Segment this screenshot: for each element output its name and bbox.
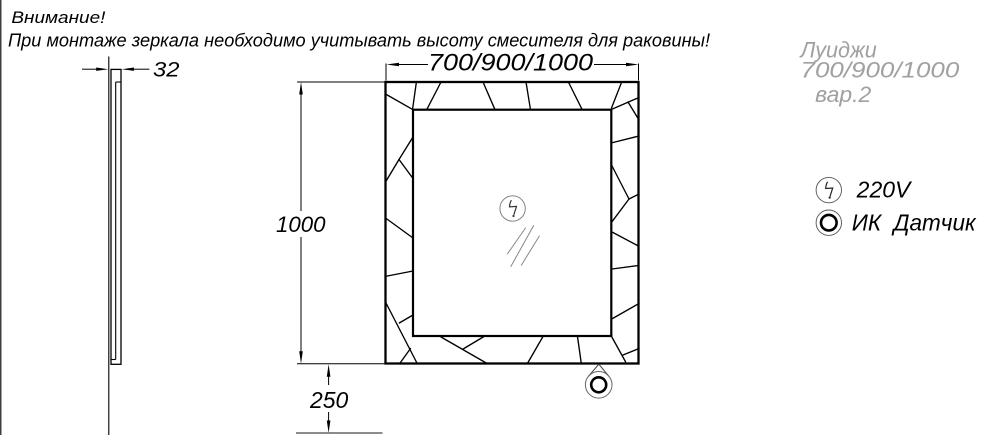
svg-text:Внимание!: Внимание! <box>11 8 105 27</box>
svg-text:700/900/1000: 700/900/1000 <box>801 57 961 82</box>
svg-text:вар.2: вар.2 <box>815 82 871 107</box>
svg-text:32: 32 <box>153 59 180 82</box>
svg-text:При монтаже зеркала необходимо: При монтаже зеркала необходимо учитывать… <box>8 31 710 51</box>
svg-text:1000: 1000 <box>276 212 326 237</box>
svg-text:220V: 220V <box>856 176 912 202</box>
svg-text:ИК Датчик: ИК Датчик <box>852 210 977 236</box>
svg-text:250: 250 <box>309 387 348 413</box>
svg-text:700/900/1000: 700/900/1000 <box>428 50 593 77</box>
